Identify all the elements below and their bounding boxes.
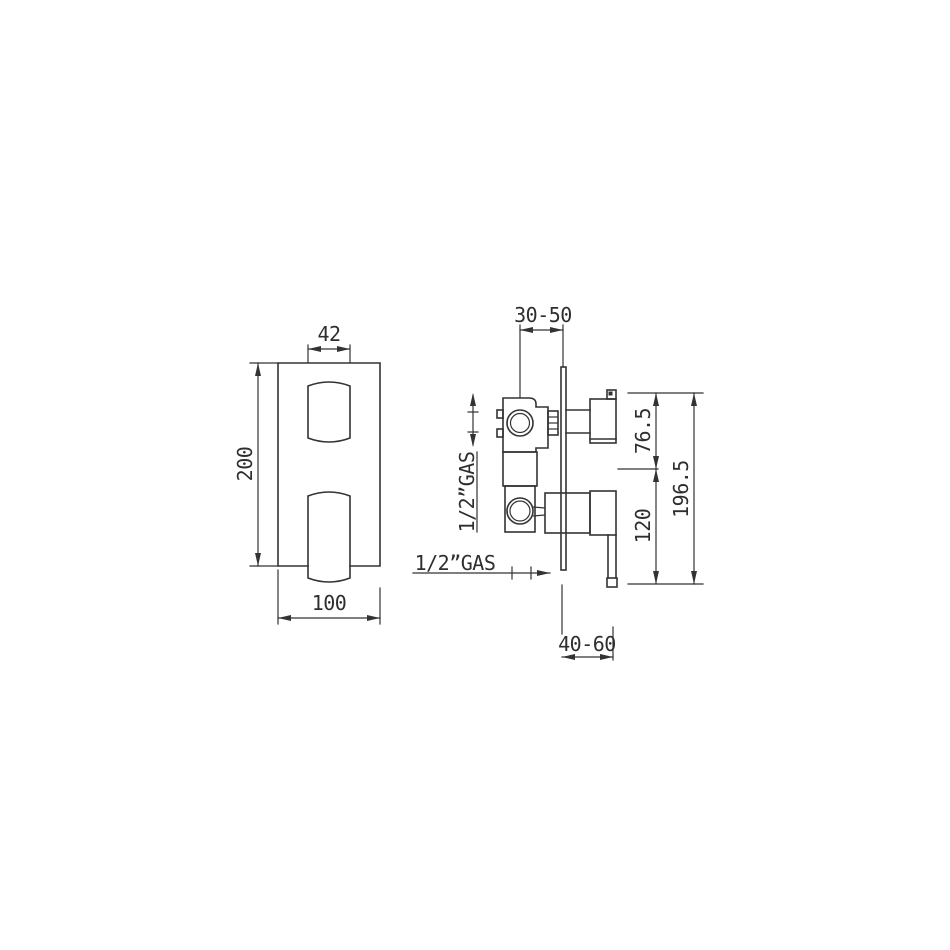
dim-plate-height: 200 [233,447,257,482]
dim-projection: 40-60 [558,632,616,656]
label-outlet-thread: 1/2”GAS [415,551,496,575]
dim-plate-width: 100 [312,591,347,615]
dim-recess-depth: 30-50 [514,303,572,327]
dim-lower-span: 120 [631,509,655,544]
technical-drawing: 42 200 100 [0,0,950,950]
side-lower-handle [590,491,616,535]
side-lower-port [507,498,533,524]
side-wall-plate [561,367,566,570]
dim-total-span: 196.5 [669,460,693,518]
side-middle-section [503,452,537,486]
dim-handle-width: 42 [317,322,340,346]
side-lower-cartridge [545,493,590,533]
side-lower-lever-tip [607,578,617,587]
side-view-body [497,367,590,570]
front-lower-knob [308,492,350,582]
side-view-handles [566,390,617,587]
side-upper-body [503,398,548,452]
front-view-plate [278,363,380,582]
label-inlet-thread: 1/2”GAS [455,452,479,533]
front-view-dimensions: 42 200 100 [233,322,380,624]
drawing-canvas: 42 200 100 [0,0,950,950]
side-view-dimensions: 30-50 1/2”GAS 76.5 120 196.5 1/2”GAS [413,303,703,660]
front-upper-knob [308,382,350,442]
side-upper-handle [590,399,616,443]
dim-upper-span: 76.5 [631,408,655,454]
